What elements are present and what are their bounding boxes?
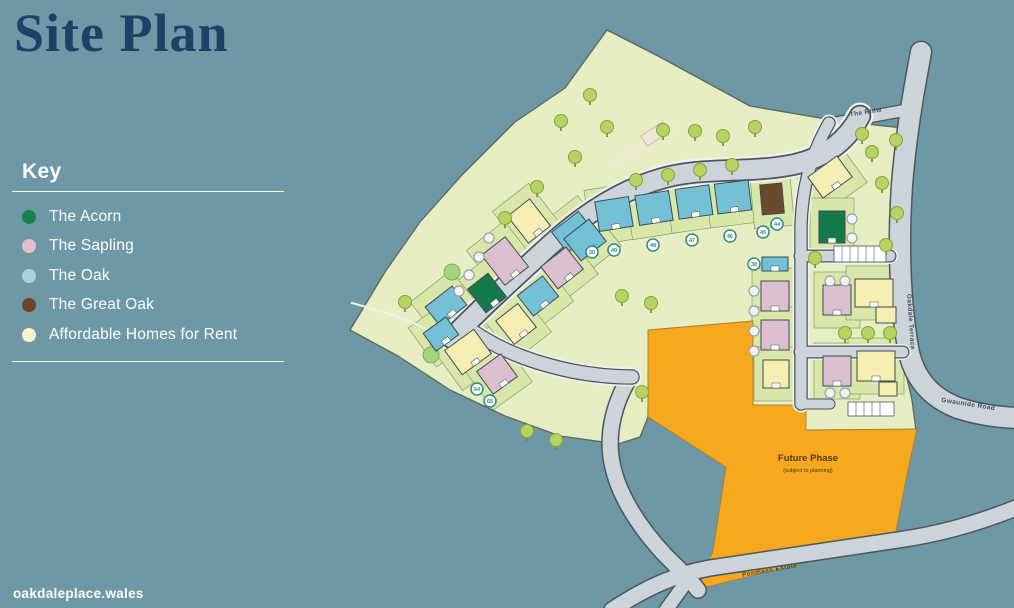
- plot-dot-marker: [840, 276, 850, 286]
- parking-court: [848, 402, 894, 416]
- house-sapling: [761, 320, 789, 350]
- legend-dot-pink: [22, 239, 36, 253]
- key-item-label: The Oak: [49, 267, 110, 285]
- key-item-label: Affordable Homes for Rent: [49, 326, 237, 344]
- svg-text:64: 64: [474, 387, 481, 393]
- svg-text:46: 46: [727, 234, 733, 240]
- legend-dot-blue: [22, 269, 36, 283]
- plot-dot-marker: [474, 252, 484, 262]
- legend-dot-cream: [22, 328, 36, 342]
- house-affordable: [879, 382, 897, 396]
- plot-number-marker: 48: [647, 239, 659, 251]
- svg-text:48: 48: [650, 243, 656, 249]
- plot-number-marker: 45: [757, 226, 769, 238]
- house-oak: [762, 257, 788, 271]
- plot-dot-marker: [749, 346, 759, 356]
- key-divider-bottom: [12, 361, 284, 362]
- svg-text:49: 49: [611, 248, 617, 254]
- plot-dot-marker: [749, 326, 759, 336]
- site-plan-page: 50494847464544386465 The Rhiw Oakdale Te…: [0, 0, 1014, 608]
- plot-dot-marker: [847, 214, 857, 224]
- house-oak: [635, 191, 673, 226]
- plot-number-marker: 44: [771, 218, 783, 230]
- plot-number-marker: 50: [586, 246, 598, 258]
- key-panel: Key The Acorn The Sapling The Oak The Gr…: [12, 160, 284, 362]
- house-sapling: [823, 356, 851, 386]
- house-affordable: [857, 351, 895, 381]
- plot-dot-marker: [749, 306, 759, 316]
- svg-text:45: 45: [760, 230, 766, 236]
- house-acorn: [819, 211, 845, 243]
- tree-icon: [550, 434, 563, 451]
- website-url: oakdaleplace.wales: [13, 586, 144, 601]
- plot-number-marker: 38: [748, 258, 760, 270]
- house-sapling: [761, 281, 789, 311]
- svg-text:65: 65: [487, 399, 493, 405]
- house-great_oak: [760, 183, 785, 215]
- house-oak: [675, 185, 713, 219]
- plot-number-marker: 64: [471, 383, 483, 395]
- svg-text:38: 38: [751, 262, 757, 268]
- house-oak: [714, 180, 751, 214]
- svg-text:47: 47: [689, 238, 695, 244]
- plot-dot-marker: [749, 286, 759, 296]
- plot-dot-marker: [840, 388, 850, 398]
- house-affordable: [763, 360, 789, 388]
- future-phase-subtitle: (subject to planning): [783, 468, 833, 474]
- key-item-label: The Great Oak: [49, 296, 154, 314]
- plot-dot-marker: [847, 233, 857, 243]
- plot-number-marker: 49: [608, 244, 620, 256]
- parking-court: [834, 246, 886, 262]
- future-phase-title: Future Phase: [778, 453, 838, 464]
- svg-text:44: 44: [774, 222, 781, 228]
- tree-icon: [521, 425, 534, 442]
- key-item-the-sapling: The Sapling: [22, 232, 284, 262]
- key-item-affordable-homes: Affordable Homes for Rent: [22, 320, 284, 350]
- plot-number-marker: 46: [724, 230, 736, 242]
- plot-dot-marker: [484, 233, 494, 243]
- legend-dot-green: [22, 210, 36, 224]
- plot-dot-marker: [825, 388, 835, 398]
- house-oak: [595, 197, 633, 232]
- key-item-the-great-oak: The Great Oak: [22, 291, 284, 321]
- key-item-the-oak: The Oak: [22, 261, 284, 291]
- plot-dot-marker: [825, 276, 835, 286]
- house-sapling: [823, 285, 851, 315]
- house-affordable: [855, 279, 893, 307]
- lawn-circle: [444, 264, 460, 280]
- key-item-the-acorn: The Acorn: [22, 202, 284, 232]
- key-item-label: The Sapling: [49, 237, 134, 255]
- key-items: The Acorn The Sapling The Oak The Great …: [12, 192, 284, 354]
- legend-dot-brown: [22, 298, 36, 312]
- house-affordable: [876, 307, 896, 323]
- key-item-label: The Acorn: [49, 208, 121, 226]
- svg-text:50: 50: [589, 250, 595, 256]
- key-heading: Key: [12, 160, 284, 184]
- plot-dot-marker: [464, 270, 474, 280]
- plot-dot-marker: [454, 286, 464, 296]
- plot-number-marker: 47: [686, 234, 698, 246]
- plot-number-marker: 65: [484, 395, 496, 407]
- page-title: Site Plan: [14, 2, 229, 64]
